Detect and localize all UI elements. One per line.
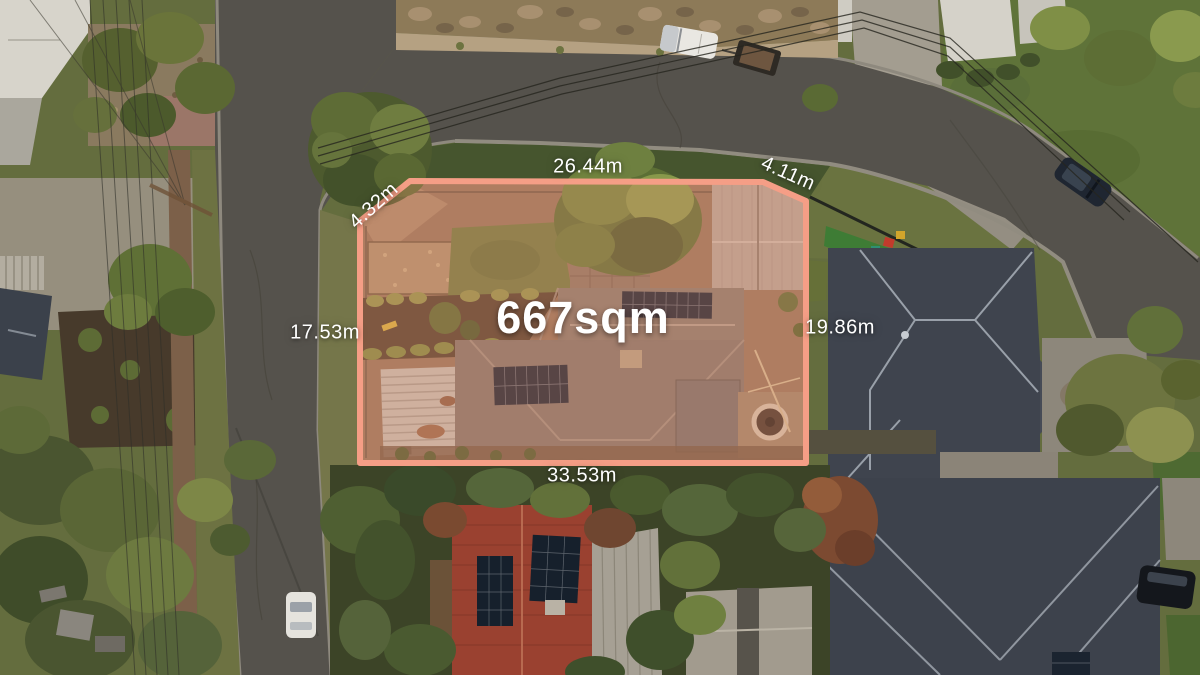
measurement-left: 17.53m [290,322,360,345]
area-label: 667sqm [496,292,670,344]
south-east-house [822,478,1200,675]
white-car [286,592,316,638]
measurement-right: 19.86m [805,317,875,340]
measurement-top: 26.44m [553,156,623,179]
aerial-property-photo: 667sqm 26.44m 4.32m 4.11m 17.53m 19.86m … [0,0,1200,675]
measurement-bottom: 33.53m [547,465,617,488]
